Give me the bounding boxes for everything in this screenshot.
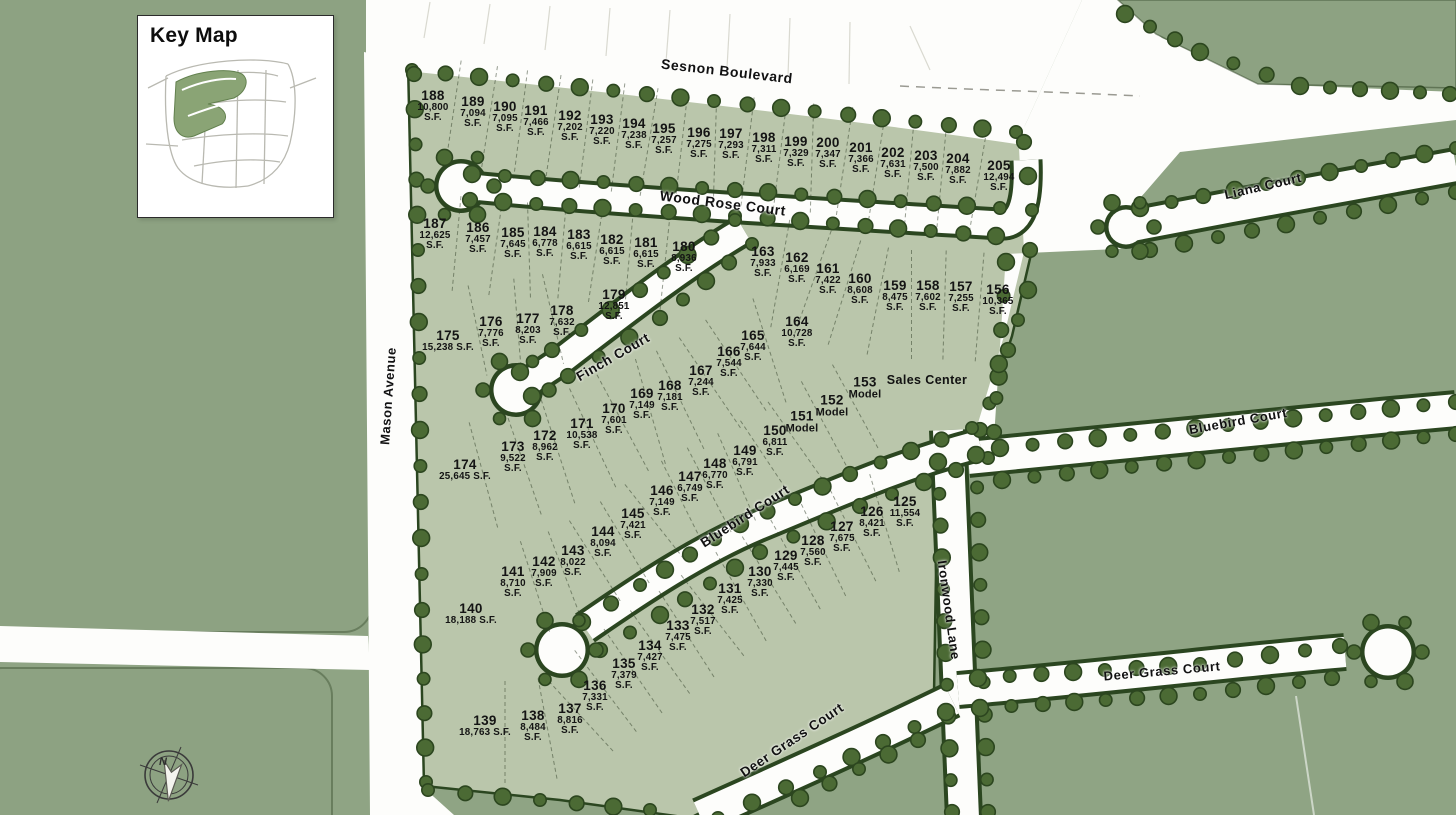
lot-number: 134	[637, 639, 663, 653]
lot-sf-unit: S.F.	[983, 183, 1014, 193]
street-label-finch-court: Finch Court	[574, 330, 653, 384]
lot-number: 128	[800, 534, 826, 548]
lot-sf-unit: S.F.	[747, 589, 773, 599]
lot-label-132: 1327,517S.F.	[690, 603, 716, 637]
lot-sf-unit: S.F.	[783, 159, 809, 169]
lot-number: 166	[716, 345, 742, 359]
lot-sf-unit: S.F.	[611, 681, 637, 691]
lot-number: 203	[913, 149, 939, 163]
lot-sf-unit: S.F.	[677, 494, 703, 504]
lot-number: 158	[915, 279, 941, 293]
lot-label-140: 14018,188 S.F.	[445, 602, 497, 626]
lot-label-125: 12511,554S.F.	[890, 495, 921, 529]
lot-sf-unit: S.F.	[781, 339, 812, 349]
lot-number: 165	[740, 329, 766, 343]
lot-number: 177	[515, 312, 541, 326]
lot-number: 156	[982, 283, 1013, 297]
lot-label-190: 1907,095S.F.	[492, 100, 518, 134]
compass-rose: N	[138, 742, 200, 808]
lot-sf-unit: S.F.	[671, 264, 697, 274]
lot-number: 152	[816, 394, 849, 408]
lot-sf-unit: S.F.	[948, 304, 974, 314]
lot-label-195: 1957,257S.F.	[651, 122, 677, 156]
lot-square-footage: 18,188 S.F.	[445, 616, 497, 626]
lot-number: 146	[649, 484, 675, 498]
lot-label-150: 1506,811S.F.	[763, 424, 788, 458]
lot-number: 143	[560, 544, 586, 558]
lot-label-193: 1937,220S.F.	[589, 113, 615, 147]
lot-sf-unit: S.F.	[651, 146, 677, 156]
lot-number: 142	[531, 555, 557, 569]
lot-number: 153	[849, 376, 882, 390]
lot-sf-unit: S.F.	[549, 328, 575, 338]
lot-model-tag: Model	[786, 423, 819, 434]
lot-number: 173	[500, 440, 526, 454]
lot-label-162: 1626,169S.F.	[784, 251, 810, 285]
sales-center-label: Sales Center	[887, 373, 968, 387]
lot-label-133: 1337,475S.F.	[665, 619, 691, 653]
lot-label-200: 2007,347S.F.	[815, 136, 841, 170]
lot-number: 141	[500, 565, 526, 579]
lot-number: 183	[566, 228, 592, 242]
lot-label-136: 1367,331S.F.	[582, 679, 608, 713]
street-label-mason-avenue: Mason Avenue	[377, 347, 399, 446]
lot-label-131: 1317,425S.F.	[717, 582, 743, 616]
lot-number: 159	[882, 279, 908, 293]
lot-number: 171	[566, 417, 597, 431]
lot-label-179: 17912,851S.F.	[598, 288, 629, 322]
lot-sf-unit: S.F.	[566, 441, 597, 451]
lot-label-196: 1967,275S.F.	[686, 126, 712, 160]
lot-label-139: 13918,763 S.F.	[459, 714, 511, 738]
lot-number: 189	[460, 95, 486, 109]
lot-label-138: 1388,484S.F.	[520, 709, 546, 743]
lot-label-192: 1927,202S.F.	[557, 109, 583, 143]
lot-sf-unit: S.F.	[560, 568, 586, 578]
lot-label-127: 1277,675S.F.	[829, 520, 855, 554]
lot-label-177: 1778,203S.F.	[515, 312, 541, 346]
lot-sf-unit: S.F.	[740, 353, 766, 363]
lot-number: 129	[773, 549, 799, 563]
lot-label-147: 1476,749S.F.	[677, 470, 703, 504]
lot-label-145: 1457,421S.F.	[620, 507, 646, 541]
lot-label-186: 1867,457S.F.	[465, 221, 491, 255]
lot-sf-unit: S.F.	[750, 269, 776, 279]
lot-number: 162	[784, 251, 810, 265]
lot-number: 200	[815, 136, 841, 150]
street-label-bluebird-court: Bluebird Court	[1188, 405, 1289, 437]
lot-number: 168	[657, 379, 683, 393]
lot-label-181: 1816,615S.F.	[633, 236, 659, 270]
lot-sf-unit: S.F.	[882, 303, 908, 313]
lot-sf-unit: S.F.	[532, 249, 558, 259]
lot-label-204: 2047,882S.F.	[945, 152, 971, 186]
lot-number: 163	[750, 245, 776, 259]
lot-sf-unit: S.F.	[492, 124, 518, 134]
lot-sf-unit: S.F.	[557, 726, 583, 736]
lot-label-172: 1728,962S.F.	[532, 429, 558, 463]
street-label-sesnon-boulevard: Sesnon Boulevard	[660, 56, 793, 87]
lot-number: 180	[671, 240, 697, 254]
lot-label-194: 1947,238S.F.	[621, 117, 647, 151]
lot-number: 187	[419, 217, 450, 231]
lot-label-130: 1307,330S.F.	[747, 565, 773, 599]
lot-label-135: 1357,379S.F.	[611, 657, 637, 691]
lot-number: 136	[582, 679, 608, 693]
key-map-thumbnail	[138, 48, 331, 206]
lot-label-128: 1287,560S.F.	[800, 534, 826, 568]
lot-label-191: 1917,466S.F.	[523, 104, 549, 138]
lot-number: 149	[732, 444, 758, 458]
lot-label-149: 1496,791S.F.	[732, 444, 758, 478]
lot-label-169: 1697,149S.F.	[629, 387, 655, 421]
lot-sf-unit: S.F.	[890, 519, 921, 529]
lot-number: 157	[948, 280, 974, 294]
lot-number: 161	[815, 262, 841, 276]
lot-sf-unit: S.F.	[601, 426, 627, 436]
lot-sf-unit: S.F.	[773, 573, 799, 583]
lot-sf-unit: S.F.	[913, 173, 939, 183]
lot-sf-unit: S.F.	[732, 468, 758, 478]
lot-number: 164	[781, 315, 812, 329]
lot-sf-unit: S.F.	[599, 257, 625, 267]
lot-number: 196	[686, 126, 712, 140]
street-label-deer-grass-court: Deer Grass Court	[737, 700, 846, 780]
compass-north-label: N	[159, 756, 168, 768]
lot-label-159: 1598,475S.F.	[882, 279, 908, 313]
lot-sf-unit: S.F.	[532, 453, 558, 463]
lot-label-166: 1667,544S.F.	[716, 345, 742, 379]
lot-square-footage: 18,763 S.F.	[459, 728, 511, 738]
street-label-deer-grass-court: Deer Grass Court	[1103, 658, 1221, 683]
lot-label-182: 1826,615S.F.	[599, 233, 625, 267]
lot-label-184: 1846,778S.F.	[532, 225, 558, 259]
lot-label-197: 1977,293S.F.	[718, 127, 744, 161]
lot-number: 144	[590, 525, 616, 539]
lot-sf-unit: S.F.	[515, 336, 541, 346]
lot-sf-unit: S.F.	[848, 165, 874, 175]
lot-sf-unit: S.F.	[945, 176, 971, 186]
lot-label-141: 1418,710S.F.	[500, 565, 526, 599]
lot-sf-unit: S.F.	[829, 544, 855, 554]
lot-number: 140	[445, 602, 497, 616]
lot-sf-unit: S.F.	[557, 133, 583, 143]
lot-sf-unit: S.F.	[690, 627, 716, 637]
lot-number: 181	[633, 236, 659, 250]
lot-label-178: 1787,632S.F.	[549, 304, 575, 338]
lot-number: 147	[677, 470, 703, 484]
lot-label-146: 1467,149S.F.	[649, 484, 675, 518]
lot-label-173: 1739,522S.F.	[500, 440, 526, 474]
lot-sf-unit: S.F.	[520, 733, 546, 743]
lot-number: 148	[702, 457, 728, 471]
lot-label-158: 1587,602S.F.	[915, 279, 941, 313]
lot-label-126: 1268,421S.F.	[859, 505, 885, 539]
lot-number: 125	[890, 495, 921, 509]
lot-sf-unit: S.F.	[621, 141, 647, 151]
lot-number: 202	[880, 146, 906, 160]
lot-number: 151	[786, 410, 819, 424]
lot-label-152: 152Model	[816, 394, 849, 419]
lot-square-footage: 25,645 S.F.	[439, 472, 491, 482]
lot-number: 160	[847, 272, 873, 286]
lot-number: 193	[589, 113, 615, 127]
lot-sf-unit: S.F.	[465, 245, 491, 255]
lot-sf-unit: S.F.	[702, 481, 728, 491]
lot-label-163: 1637,933S.F.	[750, 245, 776, 279]
lot-sf-unit: S.F.	[718, 151, 744, 161]
lot-number: 182	[599, 233, 625, 247]
lot-label-202: 2027,631S.F.	[880, 146, 906, 180]
lot-label-165: 1657,644S.F.	[740, 329, 766, 363]
lot-label-175: 17515,238 S.F.	[422, 329, 474, 353]
lot-label-137: 1378,816S.F.	[557, 702, 583, 736]
lot-number: 184	[532, 225, 558, 239]
lot-sf-unit: S.F.	[419, 241, 450, 251]
lot-number: 197	[718, 127, 744, 141]
lot-sf-unit: S.F.	[637, 663, 663, 673]
lot-label-199: 1997,329S.F.	[783, 135, 809, 169]
lot-label-153: 153Model	[849, 376, 882, 401]
site-plan-map: Key Map	[0, 0, 1456, 815]
street-label-wood-rose-court: Wood Rose Court	[659, 187, 787, 218]
lot-label-148: 1486,770S.F.	[702, 457, 728, 491]
lot-label-189: 1897,094S.F.	[460, 95, 486, 129]
lot-label-203: 2037,500S.F.	[913, 149, 939, 183]
lot-sf-unit: S.F.	[500, 250, 526, 260]
lot-sf-unit: S.F.	[717, 606, 743, 616]
lot-number: 133	[665, 619, 691, 633]
lot-sf-unit: S.F.	[763, 448, 788, 458]
lot-sf-unit: S.F.	[590, 549, 616, 559]
lot-number: 170	[601, 402, 627, 416]
lot-sf-unit: S.F.	[500, 464, 526, 474]
lot-sf-unit: S.F.	[657, 403, 683, 413]
lot-number: 169	[629, 387, 655, 401]
lot-label-160: 1608,608S.F.	[847, 272, 873, 306]
lot-sf-unit: S.F.	[460, 119, 486, 129]
compass-icon: N	[140, 747, 198, 803]
lot-sf-unit: S.F.	[589, 137, 615, 147]
lot-number: 199	[783, 135, 809, 149]
key-map-inset: Key Map	[137, 15, 334, 218]
lot-number: 186	[465, 221, 491, 235]
key-map-title: Key Map	[150, 24, 333, 48]
lot-label-156: 15610,365S.F.	[982, 283, 1013, 317]
lot-sf-unit: S.F.	[688, 388, 714, 398]
lot-sf-unit: S.F.	[784, 275, 810, 285]
lot-number: 175	[422, 329, 474, 343]
lot-label-168: 1687,181S.F.	[657, 379, 683, 413]
lot-number: 190	[492, 100, 518, 114]
lot-label-164: 16410,728S.F.	[781, 315, 812, 349]
lot-number: 130	[747, 565, 773, 579]
lot-label-167: 1677,244S.F.	[688, 364, 714, 398]
lot-number: 174	[439, 458, 491, 472]
lot-sf-unit: S.F.	[686, 150, 712, 160]
lot-sf-unit: S.F.	[815, 286, 841, 296]
lot-model-tag: Model	[849, 389, 882, 400]
lot-square-footage: 15,238 S.F.	[422, 343, 474, 353]
lot-label-183: 1836,615S.F.	[566, 228, 592, 262]
lot-sf-unit: S.F.	[665, 643, 691, 653]
lot-sf-unit: S.F.	[982, 307, 1013, 317]
lot-number: 201	[848, 141, 874, 155]
lot-number: 132	[690, 603, 716, 617]
lot-number: 176	[478, 315, 504, 329]
lot-number: 172	[532, 429, 558, 443]
lot-model-tag: Model	[816, 407, 849, 418]
lot-sf-unit: S.F.	[752, 155, 777, 165]
lot-sf-unit: S.F.	[847, 296, 873, 306]
lot-sf-unit: S.F.	[859, 529, 885, 539]
lot-number: 192	[557, 109, 583, 123]
lot-sf-unit: S.F.	[500, 589, 526, 599]
lot-number: 137	[557, 702, 583, 716]
lot-sf-unit: S.F.	[915, 303, 941, 313]
lot-label-171: 17110,538S.F.	[566, 417, 597, 451]
lot-number: 135	[611, 657, 637, 671]
lot-label-198: 1987,311S.F.	[752, 131, 777, 165]
lot-number: 198	[752, 131, 777, 145]
lot-label-151: 151Model	[786, 410, 819, 435]
lot-label-185: 1857,645S.F.	[500, 226, 526, 260]
lot-number: 195	[651, 122, 677, 136]
lot-label-161: 1617,422S.F.	[815, 262, 841, 296]
lot-number: 131	[717, 582, 743, 596]
lot-label-134: 1347,427S.F.	[637, 639, 663, 673]
lot-number: 145	[620, 507, 646, 521]
lot-label-157: 1577,255S.F.	[948, 280, 974, 314]
lot-number: 178	[549, 304, 575, 318]
street-label-liana-court: Liana Court	[1223, 170, 1303, 202]
lot-sf-unit: S.F.	[566, 252, 592, 262]
lot-sf-unit: S.F.	[598, 312, 629, 322]
lot-sf-unit: S.F.	[716, 369, 742, 379]
lot-label-205: 20512,494S.F.	[983, 159, 1014, 193]
lot-number: 150	[763, 424, 788, 438]
lot-number: 205	[983, 159, 1014, 173]
lot-number: 204	[945, 152, 971, 166]
lot-number: 185	[500, 226, 526, 240]
lot-sf-unit: S.F.	[815, 160, 841, 170]
lot-number: 179	[598, 288, 629, 302]
lot-label-144: 1448,094S.F.	[590, 525, 616, 559]
lot-sf-unit: S.F.	[649, 508, 675, 518]
lot-sf-unit: S.F.	[531, 579, 557, 589]
lot-label-143: 1438,022S.F.	[560, 544, 586, 578]
lot-label-188: 18810,800S.F.	[417, 89, 448, 123]
lot-label-170: 1707,601S.F.	[601, 402, 627, 436]
lot-label-180: 1808,936S.F.	[671, 240, 697, 274]
street-label-ironwood-lane: Ironwood Lane	[935, 559, 964, 660]
lot-label-187: 18712,625S.F.	[419, 217, 450, 251]
lot-sf-unit: S.F.	[478, 339, 504, 349]
lot-sf-unit: S.F.	[417, 113, 448, 123]
lot-sf-unit: S.F.	[582, 703, 608, 713]
lot-number: 191	[523, 104, 549, 118]
lot-label-174: 17425,645 S.F.	[439, 458, 491, 482]
lot-label-129: 1297,445S.F.	[773, 549, 799, 583]
street-label-bluebird-court: Bluebird Court	[698, 482, 792, 551]
lot-number: 138	[520, 709, 546, 723]
lot-number: 126	[859, 505, 885, 519]
lot-sf-unit: S.F.	[629, 411, 655, 421]
lot-number: 139	[459, 714, 511, 728]
lot-sf-unit: S.F.	[880, 170, 906, 180]
lot-number: 167	[688, 364, 714, 378]
lot-sf-unit: S.F.	[800, 558, 826, 568]
lot-sf-unit: S.F.	[633, 260, 659, 270]
lot-number: 127	[829, 520, 855, 534]
lot-number: 194	[621, 117, 647, 131]
lot-label-176: 1767,776S.F.	[478, 315, 504, 349]
lot-label-201: 2017,366S.F.	[848, 141, 874, 175]
lot-label-142: 1427,909S.F.	[531, 555, 557, 589]
lot-sf-unit: S.F.	[523, 128, 549, 138]
lot-number: 188	[417, 89, 448, 103]
lot-sf-unit: S.F.	[620, 531, 646, 541]
